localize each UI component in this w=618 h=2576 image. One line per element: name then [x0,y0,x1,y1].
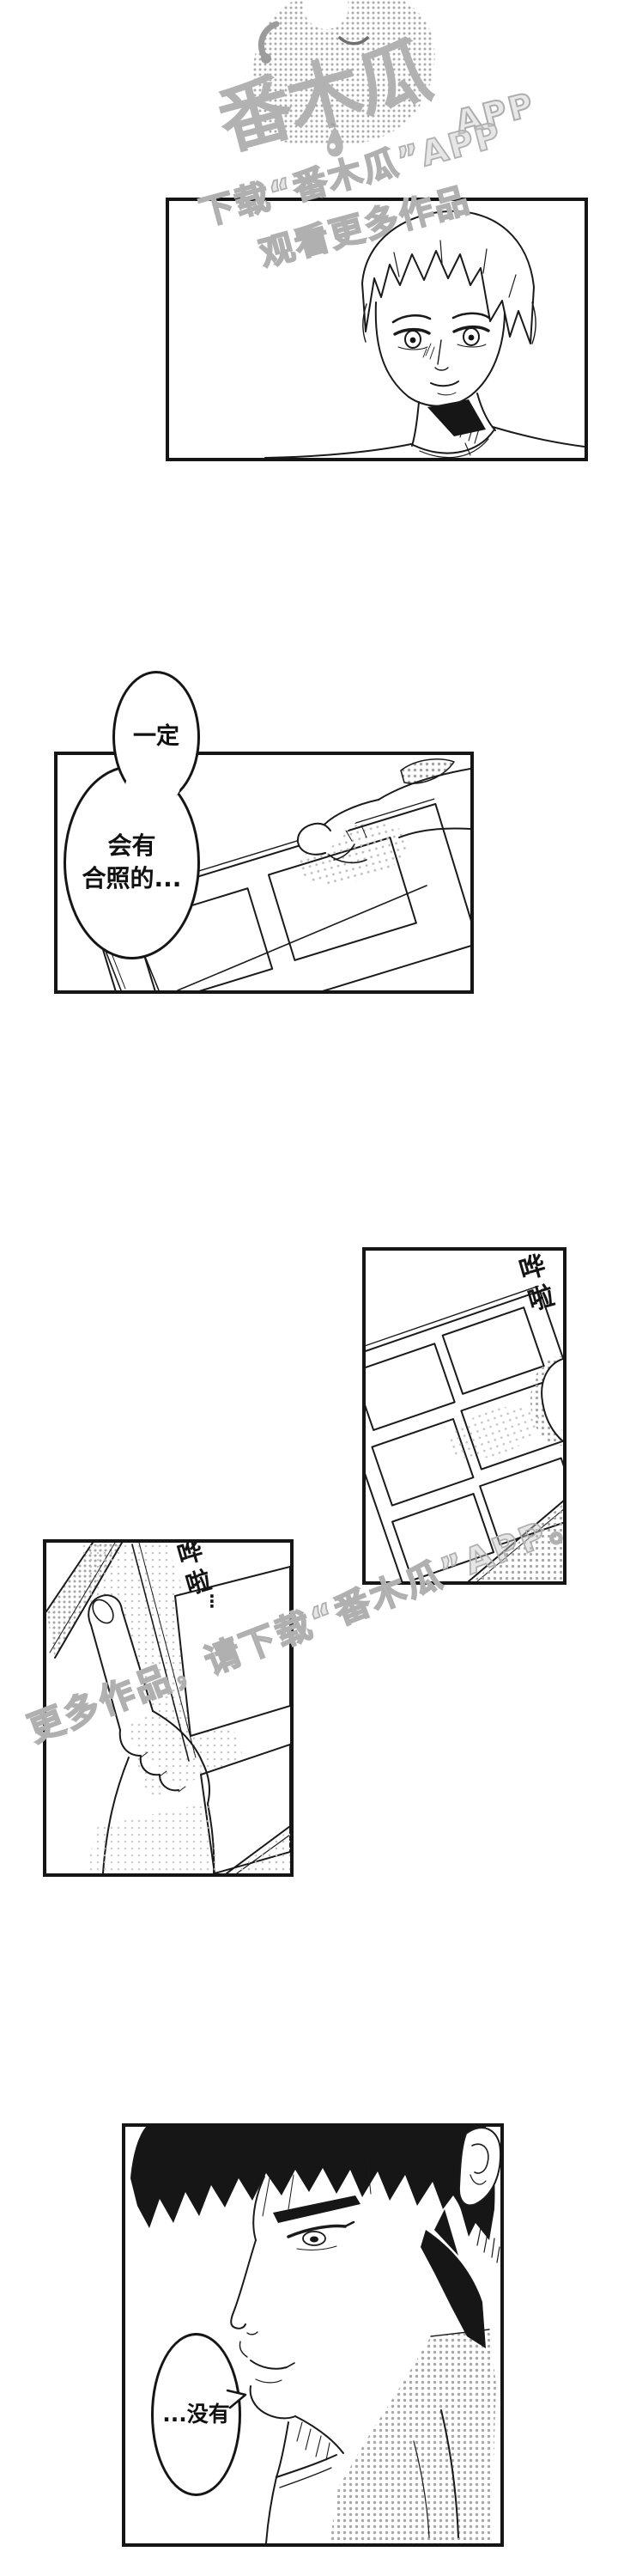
papaya-fruit-icon [324,123,346,159]
speech-bubble-joint [125,767,180,805]
hand-flipping-illustration [46,1543,290,1873]
manga-reader-page: 番木瓜 APP 下载“番木瓜”APP 观看更多作品 [0,0,618,2576]
speech-bubble-none: ...没有 [151,2333,241,2496]
bubble-text: 一定 [133,722,179,752]
bubble-text-line: 会有 [107,830,155,862]
panel-hand-flipping [43,1539,294,1877]
sfx-trail-dots: ⋮ [203,1591,221,1611]
logo-app-label: APP [451,85,539,141]
panel-blond-man [166,198,588,461]
speech-bubble-tail [224,2388,248,2412]
bubble-text: ...没有 [162,2400,230,2429]
bubble-text-line: 合照的... [82,862,182,895]
blond-man-illustration [169,201,585,458]
papaya-app-logo: 番木瓜 APP [197,0,566,198]
